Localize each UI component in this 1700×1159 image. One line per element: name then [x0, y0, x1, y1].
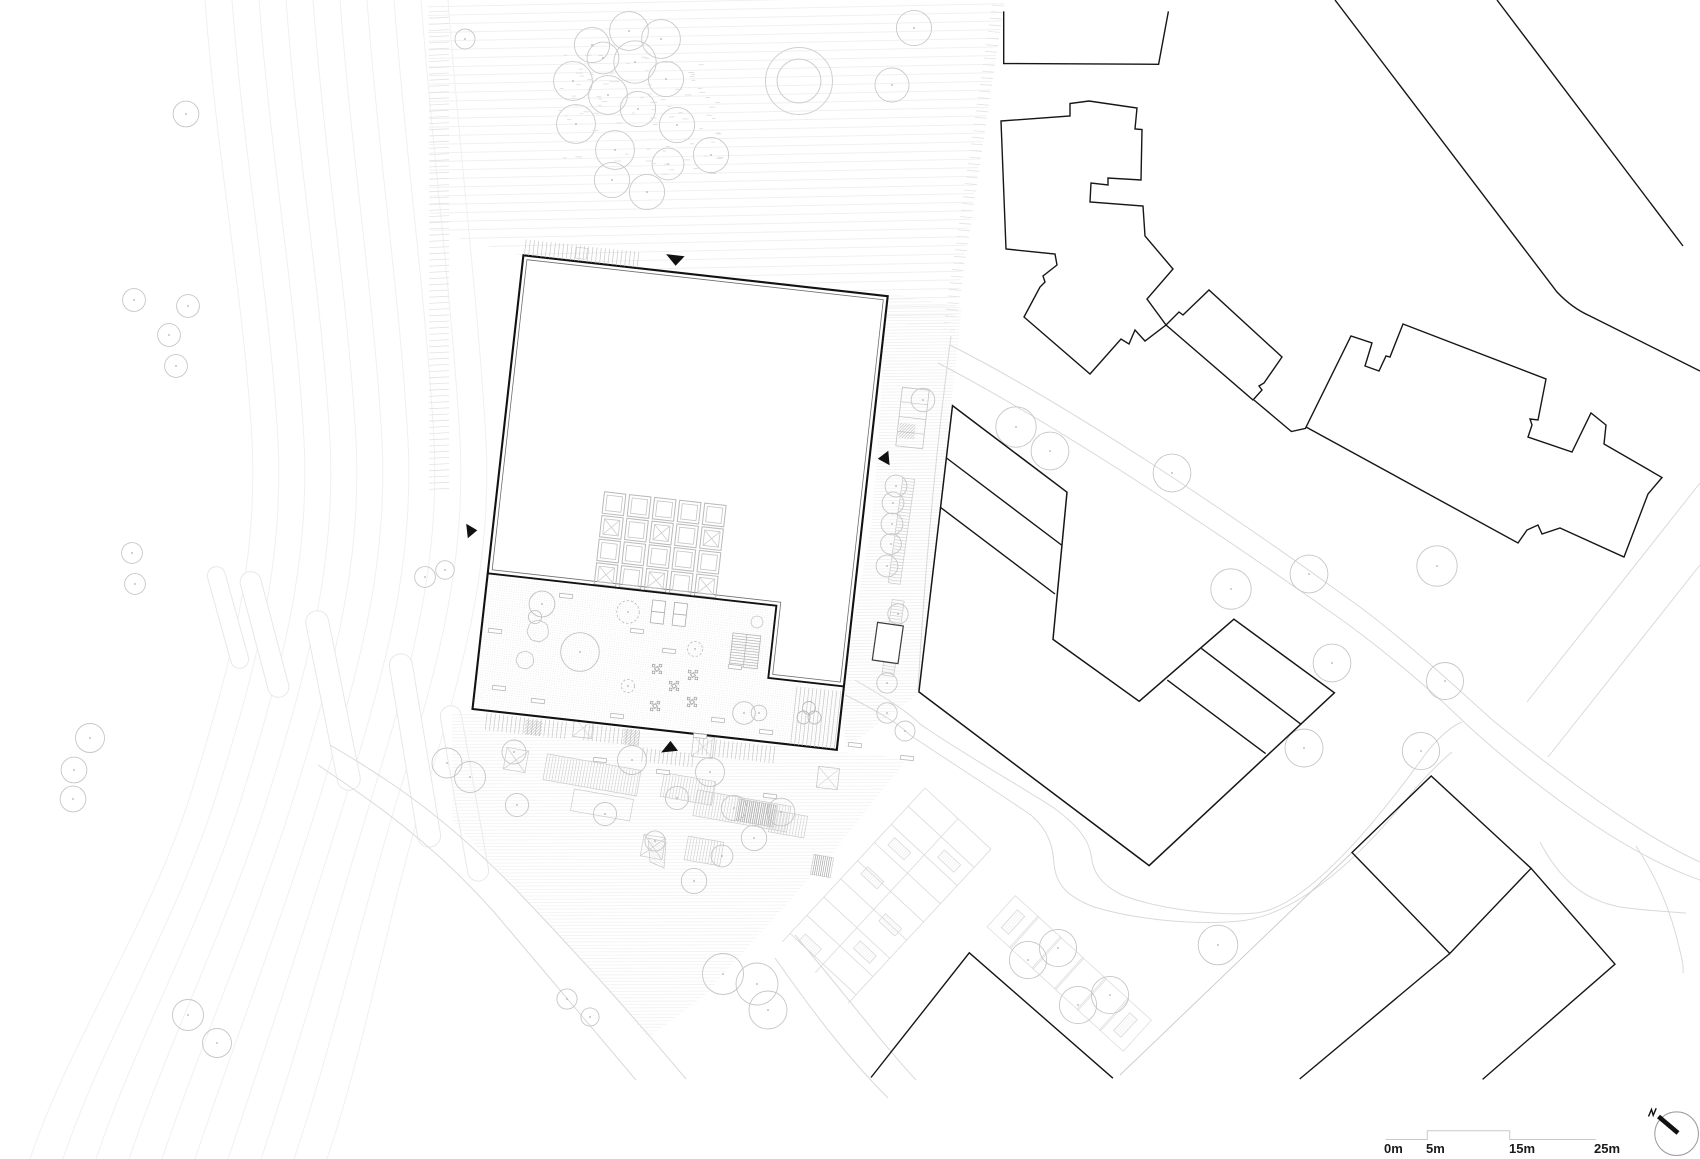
svg-text:0m: 0m	[1384, 1141, 1403, 1156]
svg-text:15m: 15m	[1509, 1141, 1535, 1156]
svg-text:5m: 5m	[1426, 1141, 1445, 1156]
svg-text:25m: 25m	[1594, 1141, 1620, 1156]
